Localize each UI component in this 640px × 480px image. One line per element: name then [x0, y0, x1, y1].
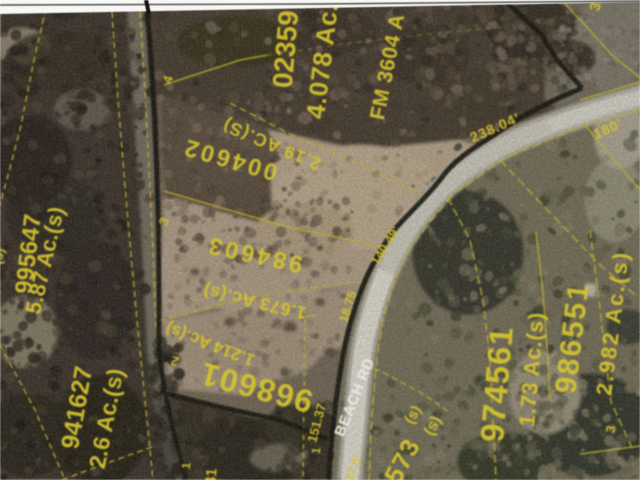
svg-text:41: 41 [202, 468, 220, 480]
